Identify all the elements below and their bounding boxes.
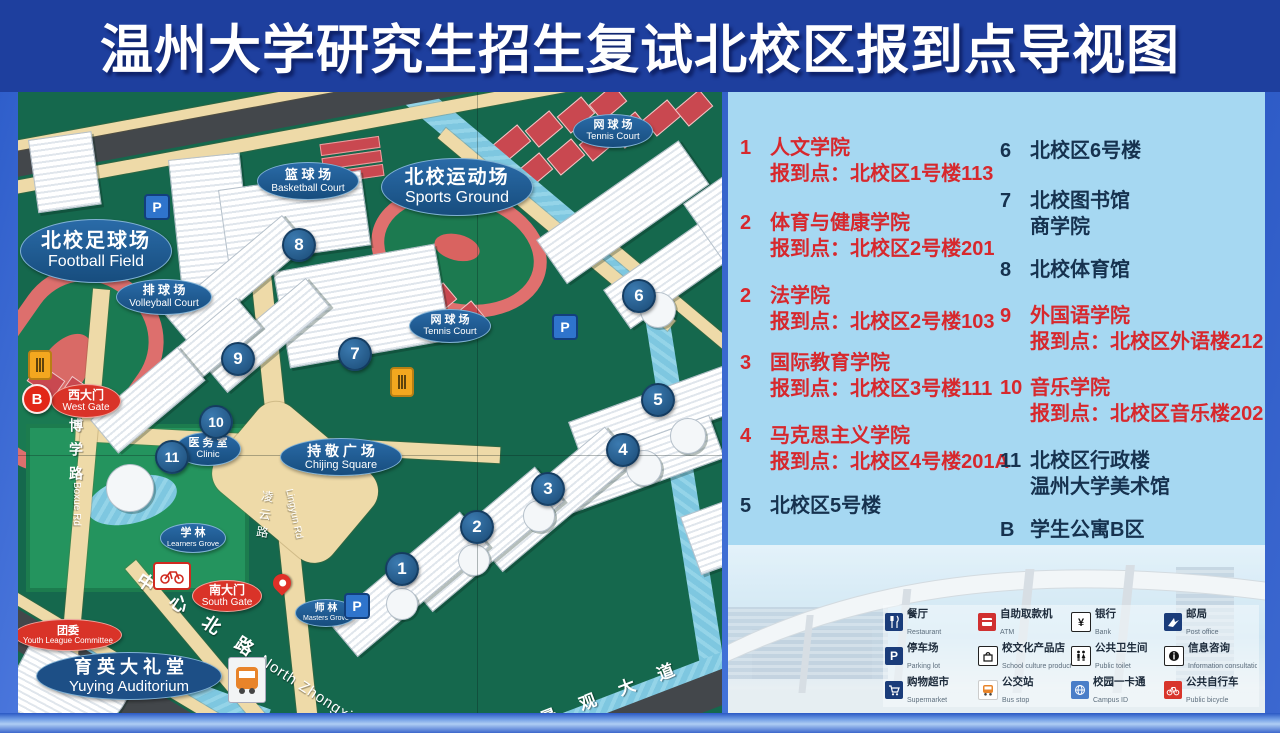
legend-item: P 停车场Parking lot bbox=[885, 639, 978, 673]
facility-legend: 餐厅Restaurant 自助取款机ATM ¥ 银行Bank 邮局Post of… bbox=[883, 605, 1259, 707]
map-marker-3: 3 bbox=[531, 472, 565, 506]
map-marker-8: 8 bbox=[282, 228, 316, 262]
parking-icon: P bbox=[885, 647, 903, 665]
label-west-gate: 西大门 West Gate bbox=[51, 384, 121, 418]
svg-text:¥: ¥ bbox=[1078, 617, 1085, 629]
building-tower bbox=[106, 464, 154, 512]
map-marker-7: 7 bbox=[338, 337, 372, 371]
directory-item: 8 北校体育馆 bbox=[1000, 257, 1130, 283]
label-basketball-court: 篮 球 场 Basketball Court bbox=[257, 162, 359, 200]
bank-icon: ¥ bbox=[1071, 612, 1091, 632]
label-south-gate: 南大门 South Gate bbox=[192, 580, 262, 612]
bicycle-icon bbox=[1164, 681, 1182, 699]
label-tennis-court-mid: 网 球 场 Tennis Court bbox=[409, 309, 491, 343]
label-tennis-court-north: 网 球 场 Tennis Court bbox=[573, 114, 653, 148]
legend-item: 校文化产品店School culture products store bbox=[978, 639, 1071, 673]
label-learners-grove: 学 林 Learners Grove bbox=[160, 523, 226, 553]
restaurant-icon bbox=[885, 613, 903, 631]
river bbox=[642, 297, 722, 686]
bicycle-icon bbox=[153, 562, 191, 590]
legend-item: 购物超市Supermarket bbox=[885, 673, 978, 707]
label-football-field: 北校足球场 Football Field bbox=[20, 219, 172, 283]
legend-item: 邮局Post office bbox=[1164, 605, 1257, 639]
directory-item: 5 北校区5号楼 bbox=[740, 493, 881, 519]
building-tower bbox=[670, 418, 706, 454]
road-label-zhongxin-en: North Zhongxin Road bbox=[256, 652, 401, 713]
map-marker-5: 5 bbox=[641, 383, 675, 417]
legend-item: 餐厅Restaurant bbox=[885, 605, 978, 639]
restaurant-icon bbox=[390, 367, 414, 397]
directory-panel: 1 人文学院报到点：北校区1号楼113 2 体育与健康学院报到点：北校区2号楼2… bbox=[728, 92, 1265, 713]
map-marker-6: 6 bbox=[622, 279, 656, 313]
directory-item: 4 马克思主义学院报到点：北校区4号楼201A bbox=[740, 423, 1009, 475]
info-icon bbox=[1164, 646, 1184, 666]
directory-item: 9 外国语学院报到点：北校区外语楼212 bbox=[1000, 303, 1263, 355]
directory-item: 11 北校区行政楼温州大学美术馆 bbox=[1000, 448, 1170, 500]
parking-icon: P bbox=[344, 593, 370, 619]
map-marker-11: 11 bbox=[155, 440, 189, 474]
bus-stop-icon bbox=[228, 657, 266, 703]
map-marker-B: B bbox=[22, 384, 52, 414]
title-bar: 温州大学研究生招生复试北校区报到点导视图 bbox=[0, 0, 1280, 92]
label-yuying-auditorium: 育 英 大 礼 堂 Yuying Auditorium bbox=[36, 652, 222, 700]
directory-item: B 学生公寓B区 bbox=[1000, 517, 1144, 543]
post-office-icon bbox=[1164, 613, 1182, 631]
toilet-icon bbox=[1071, 646, 1091, 666]
label-sports-ground: 北校运动场 Sports Ground bbox=[381, 158, 533, 216]
store-icon bbox=[978, 646, 998, 666]
parking-icon: P bbox=[144, 194, 170, 220]
map-marker-1: 1 bbox=[385, 552, 419, 586]
road-label-boxue-en: Boxue Rd bbox=[71, 482, 82, 526]
map-marker-2: 2 bbox=[460, 510, 494, 544]
campus-gate-photo: 餐厅Restaurant 自助取款机ATM ¥ 银行Bank 邮局Post of… bbox=[728, 545, 1265, 713]
directory-item: 7 北校图书馆商学院 bbox=[1000, 188, 1130, 240]
directory-item: 6 北校区6号楼 bbox=[1000, 138, 1141, 164]
map-marker-10: 10 bbox=[199, 405, 233, 439]
legend-item: 公共卫生间Public toilet bbox=[1071, 639, 1164, 673]
road-label-boxue-cn: 博学路 bbox=[66, 418, 86, 490]
label-chijing-square: 持 敬 广 场 Chijing Square bbox=[280, 438, 402, 476]
poster-frame: 温州大学研究生招生复试北校区报到点导视图 bbox=[0, 0, 1280, 733]
directory-item: 2 体育与健康学院报到点：北校区2号楼201 bbox=[740, 210, 995, 262]
map-marker-4: 4 bbox=[606, 433, 640, 467]
legend-item: ¥ 银行Bank bbox=[1071, 605, 1164, 639]
directory-item: 2 法学院报到点：北校区2号楼103 bbox=[740, 283, 995, 335]
building bbox=[28, 131, 102, 213]
legend-item: 自助取款机ATM bbox=[978, 605, 1071, 639]
legend-item: 信息咨询Information consultation bbox=[1164, 639, 1257, 673]
legend-item: 校园一卡通Campus ID bbox=[1071, 673, 1164, 707]
directory-item: 3 国际教育学院报到点：北校区3号楼111 bbox=[740, 350, 992, 402]
building-tower bbox=[458, 544, 490, 576]
atm-icon bbox=[978, 613, 996, 631]
building-tower bbox=[386, 588, 418, 620]
parking-icon: P bbox=[552, 314, 578, 340]
page-title: 温州大学研究生招生复试北校区报到点导视图 bbox=[100, 8, 1180, 84]
label-volleyball-court: 排 球 场 Volleyball Court bbox=[116, 279, 212, 315]
campus-id-icon bbox=[1071, 681, 1089, 699]
restaurant-icon bbox=[28, 350, 52, 380]
map-marker-9: 9 bbox=[221, 342, 255, 376]
bus-icon bbox=[978, 680, 998, 700]
tennis-court-rect bbox=[675, 92, 714, 127]
campus-map: 博学路 Boxue Rd 凌云路 Lingyun Rd 中 心 北 路 Nort… bbox=[18, 92, 722, 713]
legend-item: 公交站Bus stop bbox=[978, 673, 1071, 707]
legend-item: 公共自行车Public bicycle bbox=[1164, 673, 1257, 707]
directory-item: 1 人文学院报到点：北校区1号楼113 bbox=[740, 135, 993, 187]
label-youth-league: 团委 Youth League Committee bbox=[18, 619, 122, 651]
directory-item: 10 音乐学院报到点：北校区音乐楼202 bbox=[1000, 375, 1263, 427]
supermarket-icon bbox=[885, 681, 903, 699]
bottom-border-band bbox=[0, 713, 1280, 733]
